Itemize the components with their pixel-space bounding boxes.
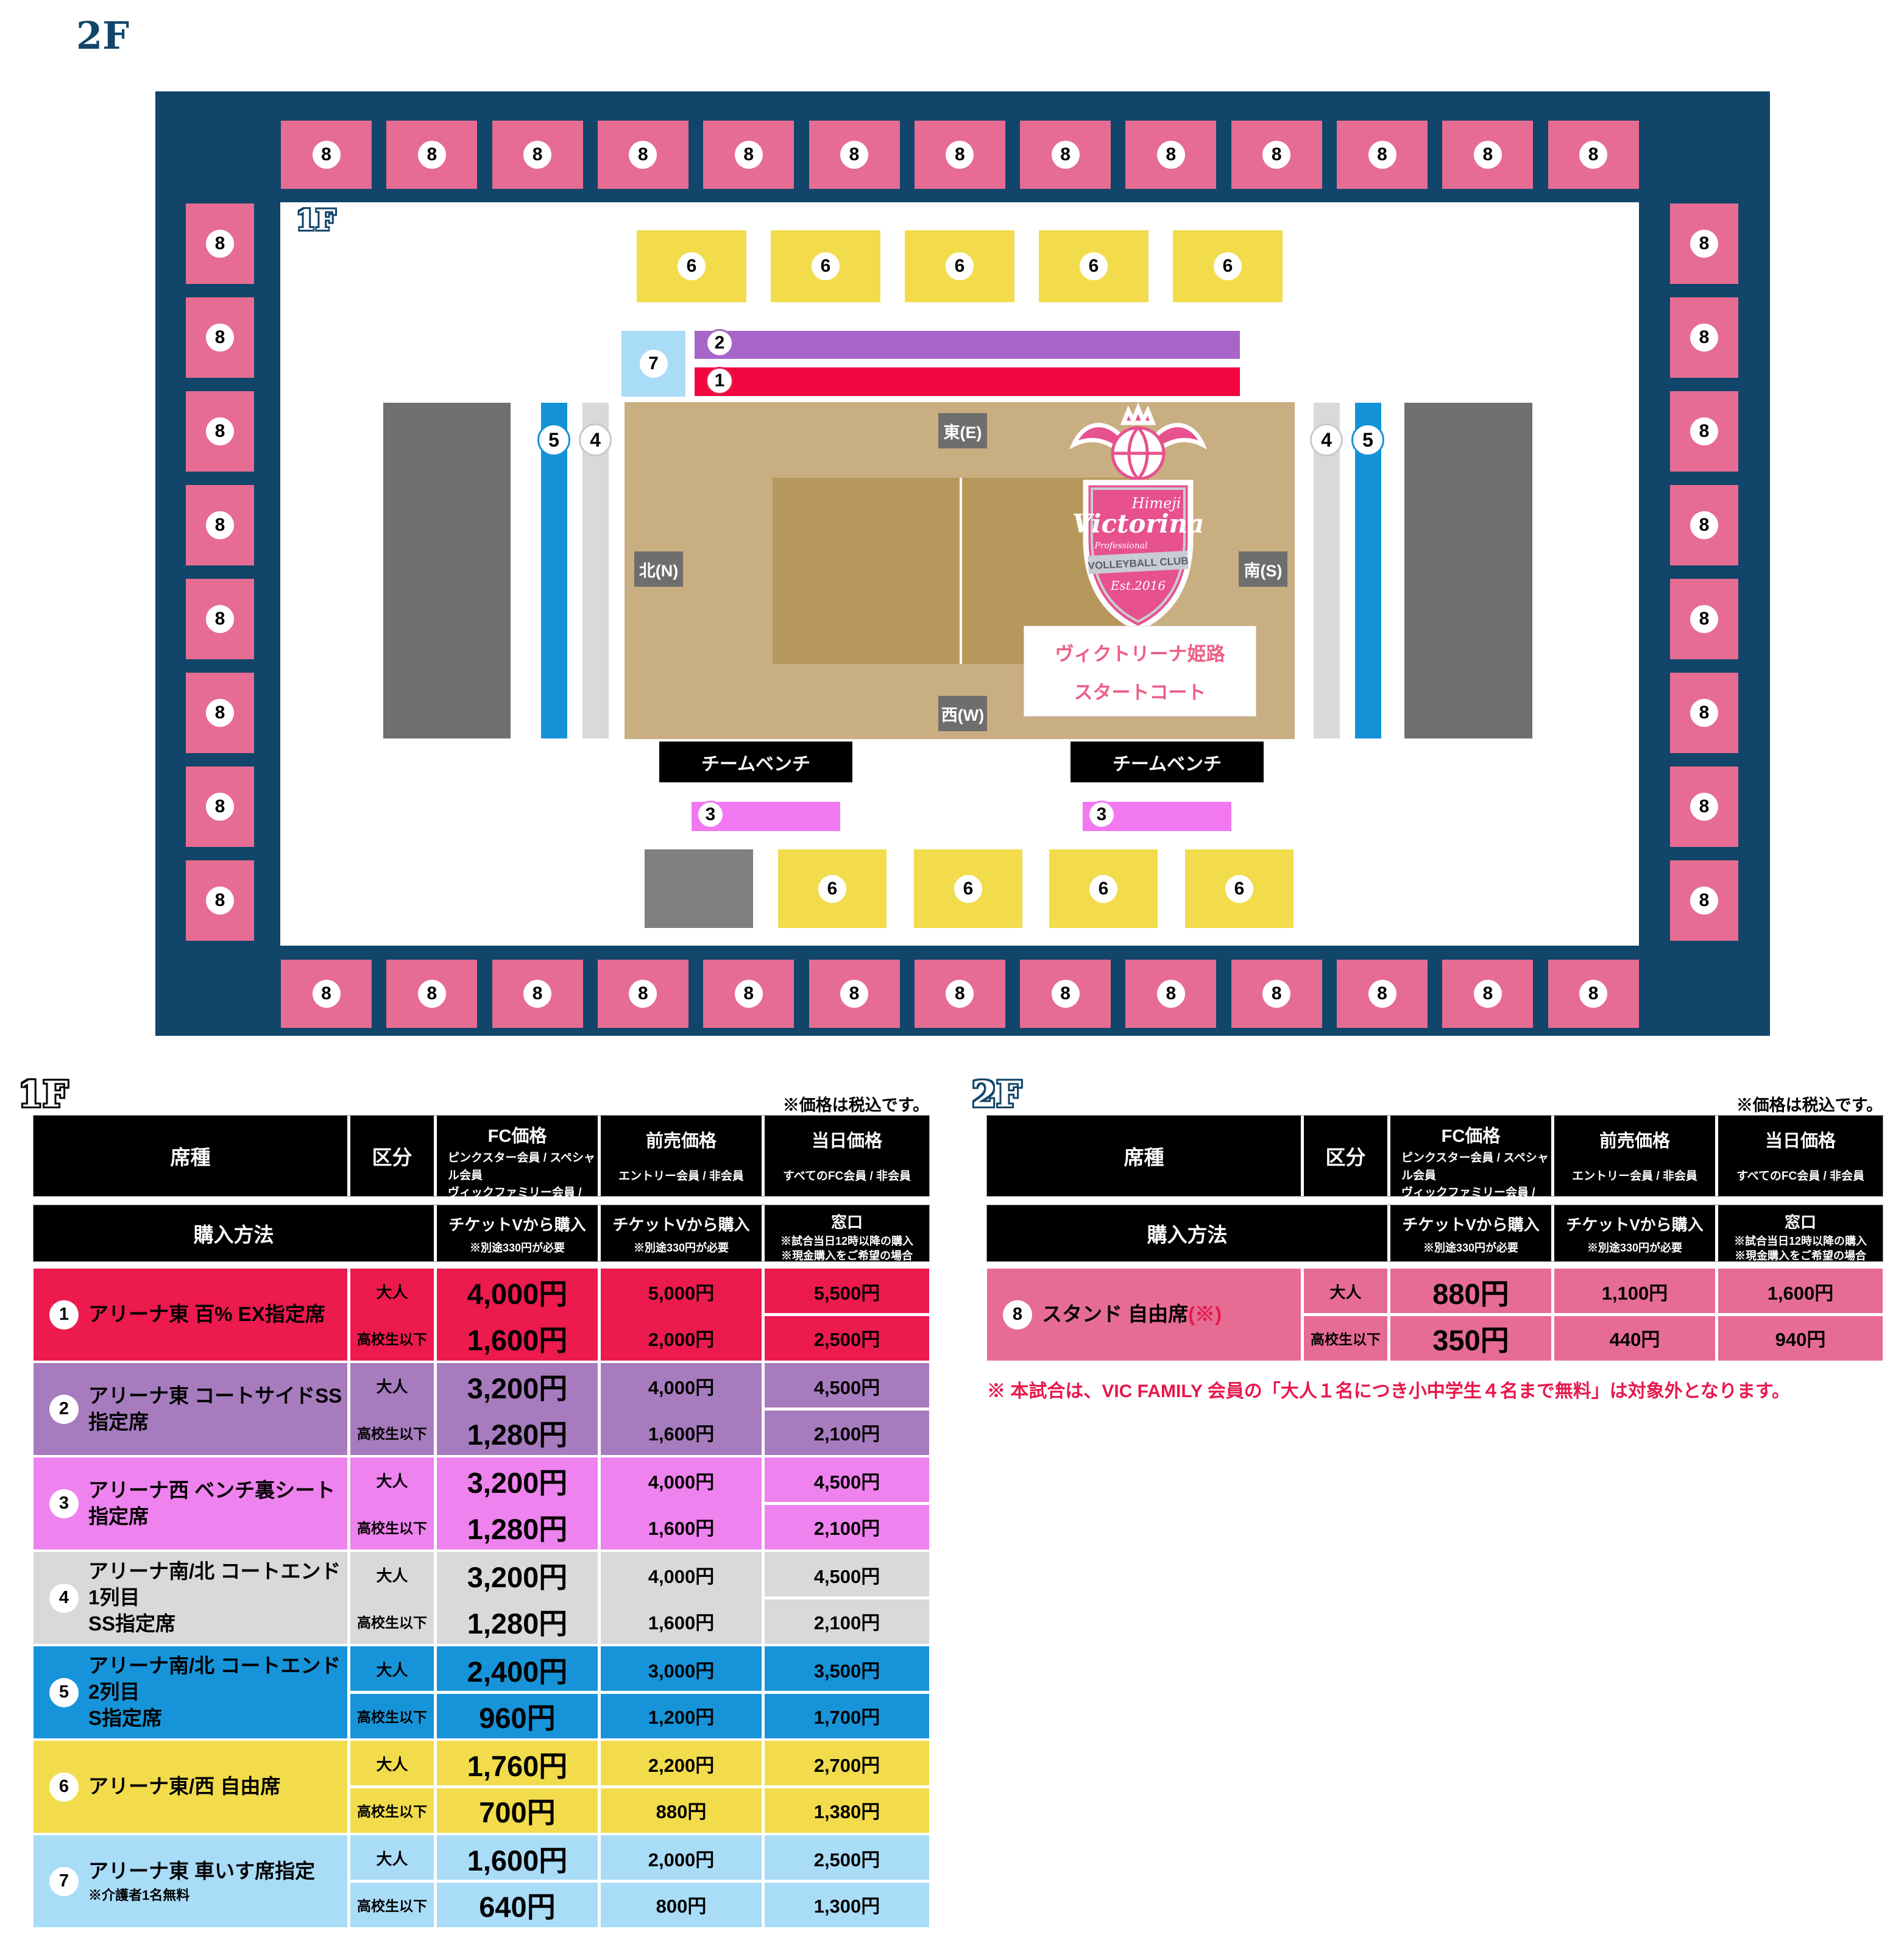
header-window-title: 窓口 [765, 1210, 929, 1233]
adv-price-adult: 4,000円 [601, 1457, 762, 1503]
stand-seat-number: 8 [206, 230, 234, 258]
stand-seat-8: 8 [1442, 960, 1533, 1028]
category-child: 高校生以下 [350, 1787, 434, 1833]
stand-seat-8: 8 [915, 121, 1005, 189]
zone-6-tile: 6 [1173, 230, 1283, 302]
price-row-6: 6 アリーナ東/西 自由席 大人高校生以下 1,760円700円 2,200円8… [34, 1741, 929, 1833]
stand-seat-number: 8 [1690, 417, 1718, 445]
stand-seat-number: 8 [418, 980, 446, 1008]
stand-seat-number: 8 [1579, 141, 1607, 169]
zone-6-number: 6 [678, 252, 706, 280]
table-1f-header: 席種 区分 FC価格 ピンクスター会員 / スペシャル会員 ヴィックファミリー会… [34, 1116, 929, 1196]
stand-seat-8: 8 [703, 960, 794, 1028]
day-price-child: 1,300円 [765, 1882, 929, 1927]
seat-number-badge: 4 [49, 1584, 79, 1613]
zone-6-tile: 6 [771, 230, 880, 302]
stand-seat-8: 8 [703, 121, 794, 189]
stand-seat-8: 8 [1670, 297, 1738, 378]
header-day-sub: すべてのFC会員 / 非会員 [1718, 1168, 1883, 1186]
category-adult: 大人 [350, 1363, 434, 1409]
stand-seat-number: 8 [735, 141, 763, 169]
stand-seat-number: 8 [1052, 141, 1080, 169]
stand-seat-number: 8 [629, 980, 657, 1008]
stand-seat-8: 8 [186, 579, 254, 659]
start-court-box: ヴィクトリーナ姫路 スタートコート [1024, 626, 1256, 717]
adv-price-adult: 5,000円 [601, 1269, 762, 1314]
stand-seat-number: 8 [313, 141, 341, 169]
day-price-child: 2,100円 [765, 1598, 929, 1644]
stand-seat-8: 8 [386, 960, 477, 1028]
seat-name: アリーナ南/北 コートエンド1列目 SS指定席 [88, 1559, 347, 1637]
stage-block-bottom [645, 849, 753, 928]
stage-block-left [383, 403, 511, 738]
stand-seat-8: 8 [1670, 204, 1738, 284]
seat-name: アリーナ東 コートサイドSS指定席 [88, 1383, 347, 1436]
day-price-child: 2,500円 [765, 1315, 929, 1361]
header-ticketv-note: ※別途330円が必要 [1390, 1240, 1551, 1256]
header-window-note2: ※現金購入をご希望の場合 [1718, 1248, 1883, 1263]
adv-price-child: 1,200円 [601, 1693, 762, 1738]
adv-price-child: 1,600円 [601, 1409, 762, 1455]
header-advance-price: 前売価格 エントリー会員 / 非会員 [601, 1116, 762, 1196]
stand-seat-number: 8 [206, 605, 234, 633]
table-title-2f: 2F [972, 1074, 1022, 1115]
header-ticketv-title: チケットVから購入 [1554, 1213, 1715, 1235]
table-title-1f: 1F [18, 1074, 68, 1115]
stand-seat-number: 8 [1690, 699, 1718, 727]
stand-seat-number: 8 [1157, 980, 1185, 1008]
svg-text:Victorina: Victorina [1072, 509, 1205, 539]
header-ticketv-title: チケットVから購入 [1390, 1213, 1551, 1235]
tax-note-2f: ※価格は税込です。 [1578, 1092, 1883, 1116]
adv-price-child: 1,600円 [601, 1504, 762, 1549]
header-day-price: 当日価格 すべてのFC会員 / 非会員 [765, 1116, 929, 1196]
zone-6-tile: 6 [1039, 230, 1148, 302]
category-child: 高校生以下 [350, 1504, 434, 1549]
stand-seat-number: 8 [1690, 511, 1718, 539]
header-category: 区分 [350, 1116, 434, 1196]
zone-6-number: 6 [818, 875, 846, 903]
day-price-child: 1,380円 [765, 1787, 929, 1833]
victorina-logo: Himeji Victorina Professional VOLLEYBALL… [1065, 397, 1211, 638]
direction-label-north: 北(N) [634, 551, 683, 587]
zone-3-number: 3 [696, 801, 724, 829]
fc-price-child: 640円 [437, 1882, 598, 1927]
stand-seat-8: 8 [915, 960, 1005, 1028]
stand-seat-8: 8 [1020, 121, 1111, 189]
header-fc-price: FC価格 ピンクスター会員 / スペシャル会員 ヴィックファミリー会員 / レギ… [1390, 1116, 1551, 1196]
header-ticketv-fc: チケットVから購入 ※別途330円が必要 [437, 1205, 598, 1261]
table-1f-purchase-header: 購入方法 チケットVから購入 ※別途330円が必要 チケットVから購入 ※別途3… [34, 1205, 929, 1261]
stand-seat-8: 8 [1337, 960, 1428, 1028]
category-child: 高校生以下 [1304, 1315, 1387, 1361]
stand-seat-8: 8 [1337, 121, 1428, 189]
stand-seat-number: 8 [206, 793, 234, 821]
stand-seat-8: 8 [281, 121, 372, 189]
vic-family-note: ※ 本試合は、VIC FAMILY 会員の「大人１名につき小中学生４名まで無料」… [987, 1376, 1889, 1403]
stand-seat-8: 8 [186, 297, 254, 378]
stand-seat-number: 8 [1690, 887, 1718, 915]
zone-6-tile: 6 [905, 230, 1014, 302]
seat-name-text: アリーナ東 車いす席指定 [88, 1860, 315, 1882]
seat-name-text: スタンド 自由席 [1042, 1303, 1188, 1325]
seat-number-badge: 5 [49, 1678, 79, 1707]
category-child: 高校生以下 [350, 1409, 434, 1455]
header-ticketv-adv: チケットVから購入 ※別途330円が必要 [1554, 1205, 1715, 1261]
stand-seat-number: 8 [1368, 141, 1396, 169]
stand-seat-number: 8 [523, 980, 551, 1008]
seat-number-badge: 2 [49, 1395, 79, 1424]
price-row-3: 3 アリーナ西 ベンチ裏シート 指定席 大人高校生以下 3,200円1,280円… [34, 1457, 929, 1549]
header-purchase-method: 購入方法 [34, 1205, 434, 1261]
table-2f-header: 席種 区分 FC価格 ピンクスター会員 / スペシャル会員 ヴィックファミリー会… [987, 1116, 1883, 1196]
seating-chart-page: 2F 8888888888888888888888888888888888888… [0, 0, 1904, 1951]
stand-seat-number: 8 [1690, 793, 1718, 821]
zone-6-number: 6 [1225, 875, 1253, 903]
seat-number-badge: 8 [1003, 1300, 1032, 1330]
stand-seat-number: 8 [523, 141, 551, 169]
fc-price-adult: 2,400円 [437, 1646, 598, 1692]
stand-seat-number: 8 [1579, 980, 1607, 1008]
stand-seat-8: 8 [186, 204, 254, 284]
zone-6-tile: 6 [1185, 849, 1294, 928]
stand-seat-number: 8 [1262, 141, 1290, 169]
fc-price-adult: 880円 [1390, 1269, 1551, 1314]
header-day-title: 当日価格 [765, 1127, 929, 1152]
team-bench-left: チームベンチ [659, 742, 852, 782]
zone-2-bar [695, 331, 1240, 359]
stand-seat-number: 8 [1157, 141, 1185, 169]
day-price-adult: 5,500円 [765, 1269, 929, 1314]
category-adult: 大人 [350, 1457, 434, 1503]
category-child: 高校生以下 [350, 1882, 434, 1927]
stand-seat-8: 8 [1548, 121, 1639, 189]
fc-price-child: 350円 [1390, 1315, 1551, 1361]
stand-seat-8: 8 [598, 960, 688, 1028]
day-price-child: 1,700円 [765, 1693, 929, 1738]
category-child: 高校生以下 [350, 1693, 434, 1738]
stand-seat-number: 8 [629, 141, 657, 169]
price-row-2: 2 アリーナ東 コートサイドSS指定席 大人高校生以下 3,200円1,280円… [34, 1363, 929, 1455]
table-2f-purchase-header: 購入方法 チケットVから購入 ※別途330円が必要 チケットVから購入 ※別途3… [987, 1205, 1883, 1261]
stand-seat-8: 8 [1231, 121, 1322, 189]
stand-seat-8: 8 [1670, 860, 1738, 941]
stand-seat-number: 8 [1474, 980, 1502, 1008]
direction-label-south: 南(S) [1239, 551, 1287, 587]
stand-seat-8: 8 [186, 673, 254, 753]
day-price-adult: 3,500円 [765, 1646, 929, 1692]
stand-seat-number: 8 [206, 511, 234, 539]
header-window: 窓口 ※試合当日12時以降の購入 ※現金購入をご希望の場合 [765, 1205, 929, 1261]
header-window-note1: ※試合当日12時以降の購入 [765, 1234, 929, 1248]
zone-5-number: 5 [537, 423, 570, 456]
header-seat-type: 席種 [987, 1116, 1301, 1196]
price-row-7: 7 アリーナ東 車いす席指定※介護者1名無料 大人高校生以下 1,600円640… [34, 1835, 929, 1927]
fc-price-adult: 3,200円 [437, 1363, 598, 1409]
tax-note-1f: ※価格は税込です。 [625, 1092, 929, 1116]
day-price-adult: 4,500円 [765, 1363, 929, 1409]
zone-6-tile: 6 [1049, 849, 1158, 928]
stand-seat-number: 8 [1690, 230, 1718, 258]
fc-price-child: 1,280円 [437, 1598, 598, 1644]
stand-seat-8: 8 [809, 121, 900, 189]
team-bench-right: チームベンチ [1071, 742, 1264, 782]
header-purchase-method: 購入方法 [987, 1205, 1387, 1261]
stand-seat-8: 8 [281, 960, 372, 1028]
category-adult: 大人 [350, 1269, 434, 1314]
stand-seat-number: 8 [1474, 141, 1502, 169]
stand-seat-8: 8 [186, 860, 254, 941]
seat-number-badge: 3 [49, 1489, 79, 1518]
seat-note: ※介護者1名無料 [88, 1887, 315, 1905]
fc-price-adult: 3,200円 [437, 1552, 598, 1598]
court-center-line [960, 478, 962, 664]
zone-6-tile: 6 [778, 849, 887, 928]
map-floor-title-2f: 2F [76, 13, 129, 58]
seat-name: アリーナ東 百% EX指定席 [88, 1301, 325, 1328]
fc-price-adult: 1,600円 [437, 1835, 598, 1881]
zone-6-tile: 6 [914, 849, 1022, 928]
stand-seat-8: 8 [186, 767, 254, 847]
zone-6-number: 6 [946, 252, 974, 280]
stand-seat-8: 8 [1020, 960, 1111, 1028]
start-court-line2: スタートコート [1074, 677, 1206, 704]
zone-6-number: 6 [954, 875, 982, 903]
stand-seat-8: 8 [1125, 121, 1216, 189]
day-price-child: 940円 [1718, 1315, 1883, 1361]
fc-price-child: 700円 [437, 1787, 598, 1833]
fc-price-child: 960円 [437, 1693, 598, 1738]
stand-seat-8: 8 [1548, 960, 1639, 1028]
seat-number-badge: 6 [49, 1772, 79, 1802]
fc-price-child: 1,280円 [437, 1504, 598, 1549]
stand-seat-number: 8 [418, 141, 446, 169]
seat-number-badge: 1 [49, 1300, 79, 1330]
adv-price-adult: 2,000円 [601, 1835, 762, 1881]
adv-price-child: 1,600円 [601, 1598, 762, 1644]
fc-price-child: 1,600円 [437, 1315, 598, 1361]
seat-name: スタンド 自由席(※) [1042, 1301, 1222, 1328]
category-adult: 大人 [350, 1835, 434, 1881]
header-ticketv-note: ※別途330円が必要 [601, 1240, 762, 1256]
header-category: 区分 [1304, 1116, 1387, 1196]
stand-seat-8: 8 [809, 960, 900, 1028]
adv-price-adult: 3,000円 [601, 1646, 762, 1692]
header-window: 窓口 ※試合当日12時以降の購入 ※現金購入をご希望の場合 [1718, 1205, 1883, 1261]
price-row-1: 1 アリーナ東 百% EX指定席 大人高校生以下 4,000円1,600円 5,… [34, 1269, 929, 1361]
day-price-adult: 4,500円 [765, 1552, 929, 1598]
stand-seat-number: 8 [206, 324, 234, 352]
adv-price-adult: 2,200円 [601, 1741, 762, 1786]
zone-6-number: 6 [812, 252, 840, 280]
stage-block-right [1404, 403, 1532, 738]
day-price-adult: 2,500円 [765, 1835, 929, 1881]
map-floor-title-1f: 1F [296, 204, 336, 236]
direction-label-west: 西(W) [938, 696, 987, 731]
zone-6-number: 6 [1214, 252, 1242, 280]
zone-1-number: 1 [706, 367, 734, 395]
stand-seat-number: 8 [946, 980, 974, 1008]
price-row-4: 4 アリーナ南/北 コートエンド1列目 SS指定席 大人高校生以下 3,200円… [34, 1552, 929, 1644]
header-day-title: 当日価格 [1718, 1127, 1883, 1152]
stand-seat-number: 8 [313, 980, 341, 1008]
adv-price-adult: 4,000円 [601, 1363, 762, 1409]
header-ticketv-fc: チケットVから購入 ※別途330円が必要 [1390, 1205, 1551, 1261]
header-adv-title: 前売価格 [601, 1127, 762, 1152]
category-adult: 大人 [350, 1646, 434, 1692]
header-ticketv-title: チケットVから購入 [601, 1213, 762, 1235]
stand-seat-number: 8 [206, 417, 234, 445]
header-window-note1: ※試合当日12時以降の購入 [1718, 1234, 1883, 1248]
zone-4-number: 4 [1310, 423, 1343, 456]
day-price-adult: 2,700円 [765, 1741, 929, 1786]
category-adult: 大人 [350, 1741, 434, 1786]
stand-seat-8: 8 [1670, 579, 1738, 659]
adv-price-adult: 1,100円 [1554, 1269, 1715, 1314]
svg-text:Est.2016: Est.2016 [1110, 578, 1166, 593]
category-child: 高校生以下 [350, 1315, 434, 1361]
seat-name: アリーナ西 ベンチ裏シート 指定席 [88, 1478, 335, 1530]
seat-name: アリーナ東 車いす席指定※介護者1名無料 [88, 1858, 315, 1904]
zone-7-box: 7 [621, 331, 685, 397]
stand-seat-number: 8 [840, 980, 868, 1008]
header-ticketv-adv: チケットVから購入 ※別途330円が必要 [601, 1205, 762, 1261]
stand-seat-number: 8 [206, 699, 234, 727]
price-row-8: 8 スタンド 自由席(※) 大人高校生以下 880円350円 1,100円440… [987, 1269, 1883, 1361]
fc-price-adult: 4,000円 [437, 1269, 598, 1314]
stand-seat-number: 8 [1262, 980, 1290, 1008]
stand-seat-number: 8 [1052, 980, 1080, 1008]
header-ticketv-note: ※別途330円が必要 [1554, 1240, 1715, 1256]
stand-seat-8: 8 [1442, 121, 1533, 189]
zone-1-bar [695, 367, 1240, 396]
stand-seat-8: 8 [1670, 391, 1738, 472]
header-fc-title: FC価格 [437, 1122, 598, 1147]
adv-price-child: 800円 [601, 1882, 762, 1927]
stand-seat-8: 8 [492, 960, 583, 1028]
fc-price-child: 1,280円 [437, 1409, 598, 1455]
stand-seat-number: 8 [1690, 324, 1718, 352]
stand-seat-8: 8 [1670, 673, 1738, 753]
header-day-sub: すべてのFC会員 / 非会員 [765, 1168, 929, 1186]
stand-seat-8: 8 [186, 391, 254, 472]
seat-name: アリーナ南/北 コートエンド2列目 S指定席 [88, 1653, 347, 1732]
day-price-adult: 1,600円 [1718, 1269, 1883, 1314]
stand-seat-number: 8 [206, 887, 234, 915]
header-fc-price: FC価格 ピンクスター会員 / スペシャル会員 ヴィックファミリー会員 / レギ… [437, 1116, 598, 1196]
seat-number-badge: 7 [49, 1867, 79, 1896]
header-window-title: 窓口 [1718, 1210, 1883, 1233]
zone-7-number: 7 [640, 350, 668, 378]
stand-seat-number: 8 [1368, 980, 1396, 1008]
header-adv-title: 前売価格 [1554, 1127, 1715, 1152]
fc-price-adult: 1,760円 [437, 1741, 598, 1786]
day-price-child: 2,100円 [765, 1504, 929, 1549]
header-adv-sub: エントリー会員 / 非会員 [601, 1168, 762, 1186]
fc-price-adult: 3,200円 [437, 1457, 598, 1503]
stand-seat-8: 8 [186, 485, 254, 565]
stand-seat-8: 8 [1231, 960, 1322, 1028]
adv-price-child: 2,000円 [601, 1315, 762, 1361]
direction-label-east: 東(E) [938, 413, 987, 448]
zone-6-number: 6 [1080, 252, 1108, 280]
zone-4-number: 4 [579, 423, 612, 456]
seat-name-suffix: (※) [1188, 1303, 1222, 1325]
zone-5-number: 5 [1351, 423, 1384, 456]
stand-seat-8: 8 [1670, 767, 1738, 847]
zone-6-number: 6 [1089, 875, 1117, 903]
stand-seat-8: 8 [598, 121, 688, 189]
stand-seat-8: 8 [386, 121, 477, 189]
stand-seat-number: 8 [735, 980, 763, 1008]
zone-2-number: 2 [706, 329, 734, 357]
stand-seat-8: 8 [492, 121, 583, 189]
adv-price-child: 440円 [1554, 1315, 1715, 1361]
price-row-5: 5 アリーナ南/北 コートエンド2列目 S指定席 大人高校生以下 2,400円9… [34, 1646, 929, 1738]
header-window-note2: ※現金購入をご希望の場合 [765, 1248, 929, 1263]
stand-seat-number: 8 [840, 141, 868, 169]
header-adv-sub: エントリー会員 / 非会員 [1554, 1168, 1715, 1186]
stand-seat-number: 8 [946, 141, 974, 169]
zone-3-number: 3 [1088, 801, 1116, 829]
day-price-adult: 4,500円 [765, 1457, 929, 1503]
day-price-child: 2,100円 [765, 1409, 929, 1455]
header-day-price: 当日価格 すべてのFC会員 / 非会員 [1718, 1116, 1883, 1196]
category-adult: 大人 [350, 1552, 434, 1598]
header-seat-type: 席種 [34, 1116, 347, 1196]
category-child: 高校生以下 [350, 1598, 434, 1644]
category-adult: 大人 [1304, 1269, 1387, 1314]
header-advance-price: 前売価格 エントリー会員 / 非会員 [1554, 1116, 1715, 1196]
header-ticketv-title: チケットVから購入 [437, 1213, 598, 1235]
svg-text:Professional: Professional [1094, 541, 1147, 551]
stand-seat-8: 8 [1125, 960, 1216, 1028]
stand-seat-number: 8 [1690, 605, 1718, 633]
adv-price-child: 880円 [601, 1787, 762, 1833]
header-ticketv-note: ※別途330円が必要 [437, 1240, 598, 1256]
adv-price-adult: 4,000円 [601, 1552, 762, 1598]
stand-seat-8: 8 [1670, 485, 1738, 565]
zone-6-tile: 6 [637, 230, 746, 302]
seat-name: アリーナ東/西 自由席 [88, 1774, 280, 1800]
header-fc-title: FC価格 [1390, 1122, 1551, 1147]
start-court-line1: ヴィクトリーナ姫路 [1055, 639, 1225, 666]
